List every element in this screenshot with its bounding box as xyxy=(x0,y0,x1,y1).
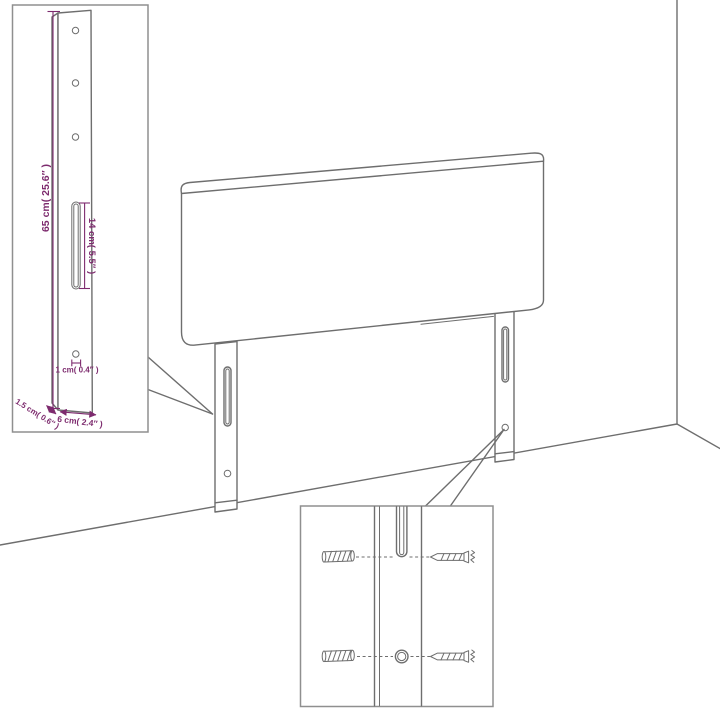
wedge-line xyxy=(450,430,504,507)
wedge-line xyxy=(425,430,504,507)
wedge-line xyxy=(148,357,213,414)
floor-line-right xyxy=(677,424,720,449)
dim-height-label: 65 cm( 25.6″ ) xyxy=(40,164,52,232)
headboard-panel xyxy=(182,161,544,345)
mounting-detail-inset xyxy=(301,506,494,707)
callout-wedge-mounting-detail xyxy=(425,430,504,507)
callout-wedge-leg-detail xyxy=(148,357,213,414)
dim-slot-label: 14 cm( 5.5″ ) xyxy=(86,218,97,274)
leg-front-face xyxy=(58,10,92,413)
leg-detail-inset: 65 cm( 25.6″ ) 14 cm( 5.5″ ) 1 cm( 0.4″ … xyxy=(13,5,149,432)
dim-hole-label: 1 cm( 0.4″ ) xyxy=(56,366,99,375)
assembly-diagram: 65 cm( 25.6″ ) 14 cm( 5.5″ ) 1 cm( 0.4″ … xyxy=(0,0,720,720)
wedge-line xyxy=(148,390,213,415)
